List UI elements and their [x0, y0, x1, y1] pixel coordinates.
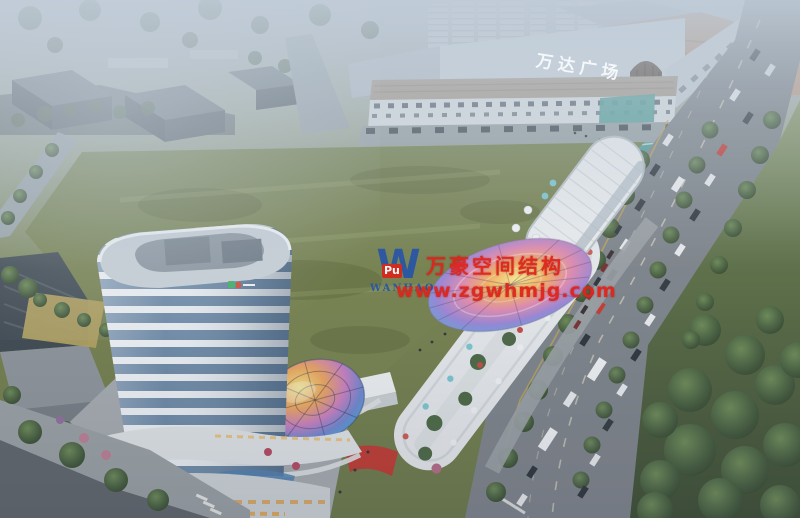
watermark-url: www.zgwhmjg.com [396, 282, 617, 301]
watermark-company: 万豪空间结构 [426, 256, 564, 276]
watermark: W Pu WANHAO 万豪空间结构 www.zgwhmjg.com [362, 246, 588, 316]
aerial-rendering: 万达广场 W Pu WANHAO 万豪空间结构 www.zgwhmjg.com [0, 0, 800, 518]
watermark-logo-badge: Pu [382, 264, 402, 278]
